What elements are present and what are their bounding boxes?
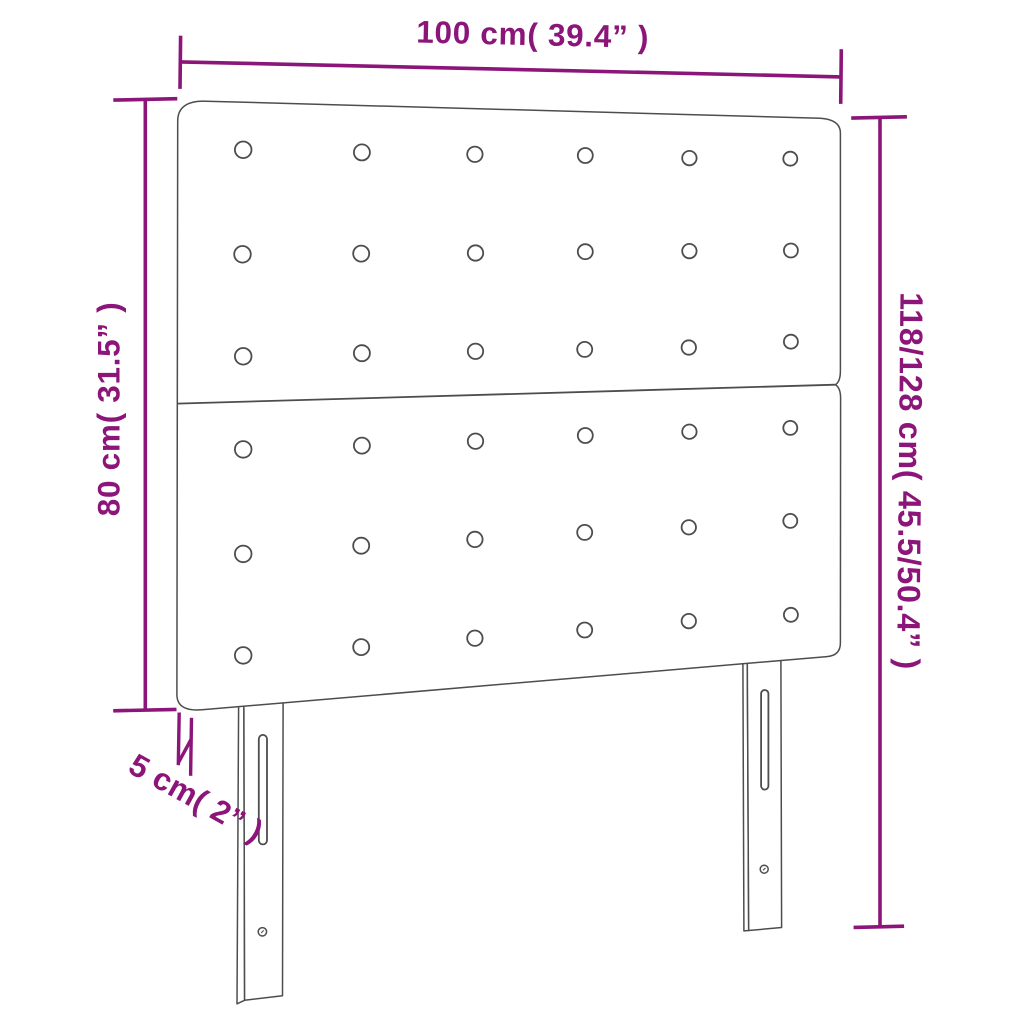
svg-text:80 cm( 31.5” ): 80 cm( 31.5” ) [91,302,127,517]
svg-text:100 cm( 39.4” ): 100 cm( 39.4” ) [416,14,650,55]
svg-text:118/128 cm( 45.5/50.4” ): 118/128 cm( 45.5/50.4” ) [890,292,929,670]
